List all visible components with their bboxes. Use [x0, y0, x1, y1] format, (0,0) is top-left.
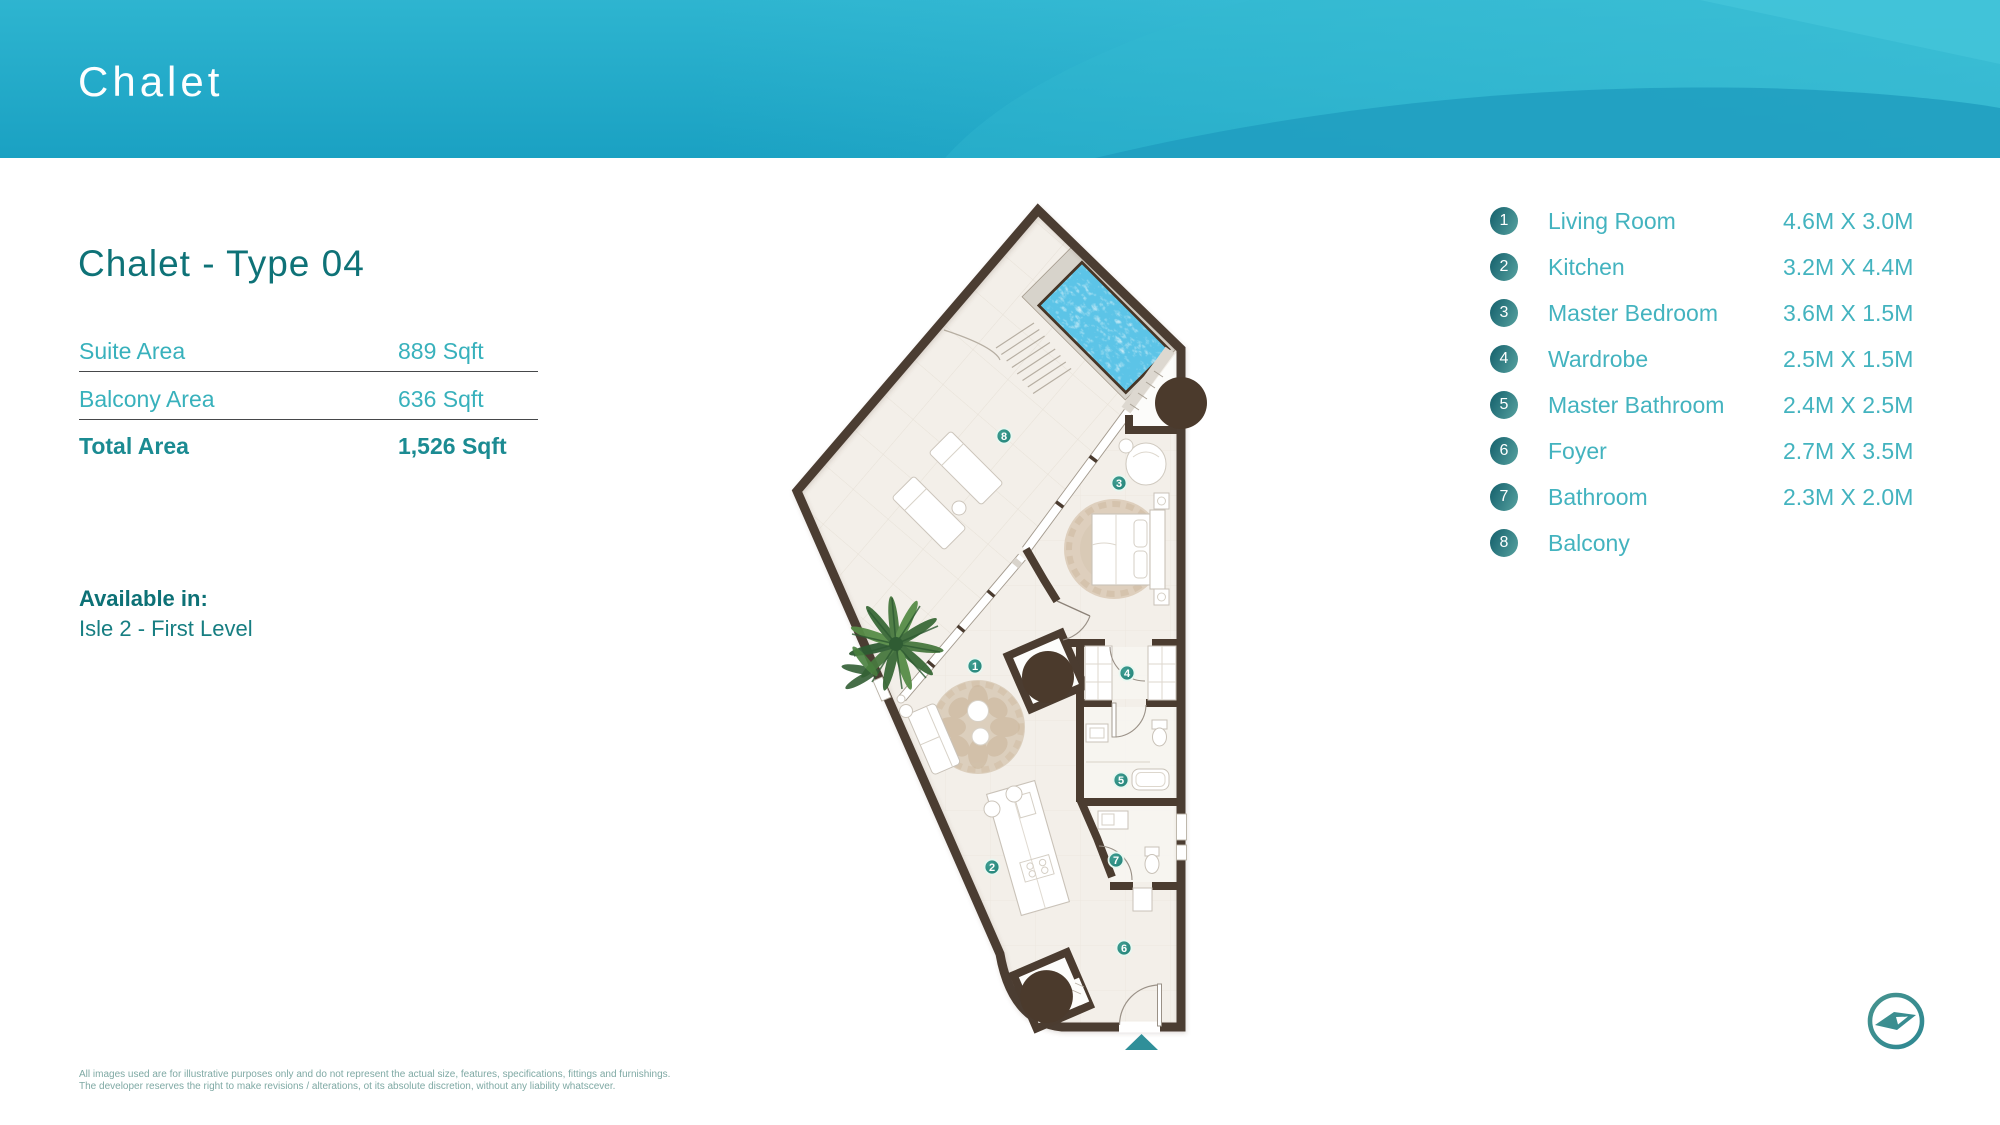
svg-text:1: 1	[972, 661, 978, 673]
svg-text:6: 6	[1121, 943, 1127, 955]
svg-text:5: 5	[1118, 775, 1124, 787]
svg-text:7: 7	[1113, 855, 1119, 867]
svg-text:8: 8	[1001, 431, 1007, 443]
svg-text:2: 2	[989, 862, 995, 874]
svg-text:3: 3	[1116, 478, 1122, 490]
svg-text:4: 4	[1124, 668, 1131, 680]
